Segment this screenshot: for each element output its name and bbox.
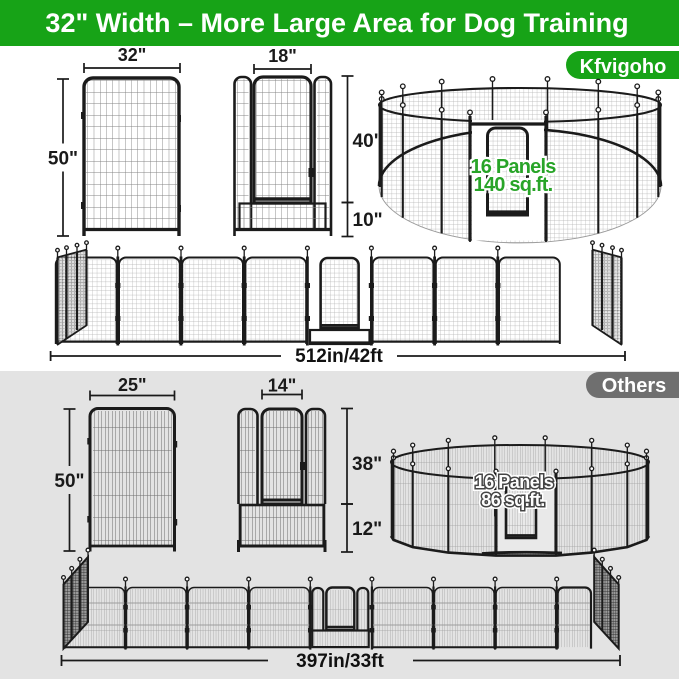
svg-text:10": 10" [353, 210, 383, 231]
svg-text:140 sq.ft.: 140 sq.ft. [474, 174, 553, 196]
svg-text:86 sq.ft.: 86 sq.ft. [481, 490, 545, 510]
svg-text:50": 50" [54, 471, 84, 492]
svg-text:12": 12" [352, 519, 382, 540]
svg-text:32": 32" [118, 45, 147, 65]
svg-text:32" Width – More Large Area fo: 32" Width – More Large Area for Dog Trai… [45, 8, 628, 38]
svg-text:18": 18" [268, 46, 297, 66]
svg-text:Others: Others [602, 375, 666, 397]
svg-text:Kfvigoho: Kfvigoho [580, 56, 667, 78]
svg-text:397in/33ft: 397in/33ft [296, 651, 384, 672]
svg-text:25": 25" [118, 375, 147, 395]
svg-text:40": 40" [353, 131, 383, 152]
svg-text:38": 38" [352, 454, 382, 475]
svg-text:50": 50" [48, 148, 78, 169]
svg-text:14": 14" [268, 376, 297, 396]
svg-text:512in/42ft: 512in/42ft [295, 346, 383, 367]
svg-text:16 Panels: 16 Panels [475, 472, 554, 492]
